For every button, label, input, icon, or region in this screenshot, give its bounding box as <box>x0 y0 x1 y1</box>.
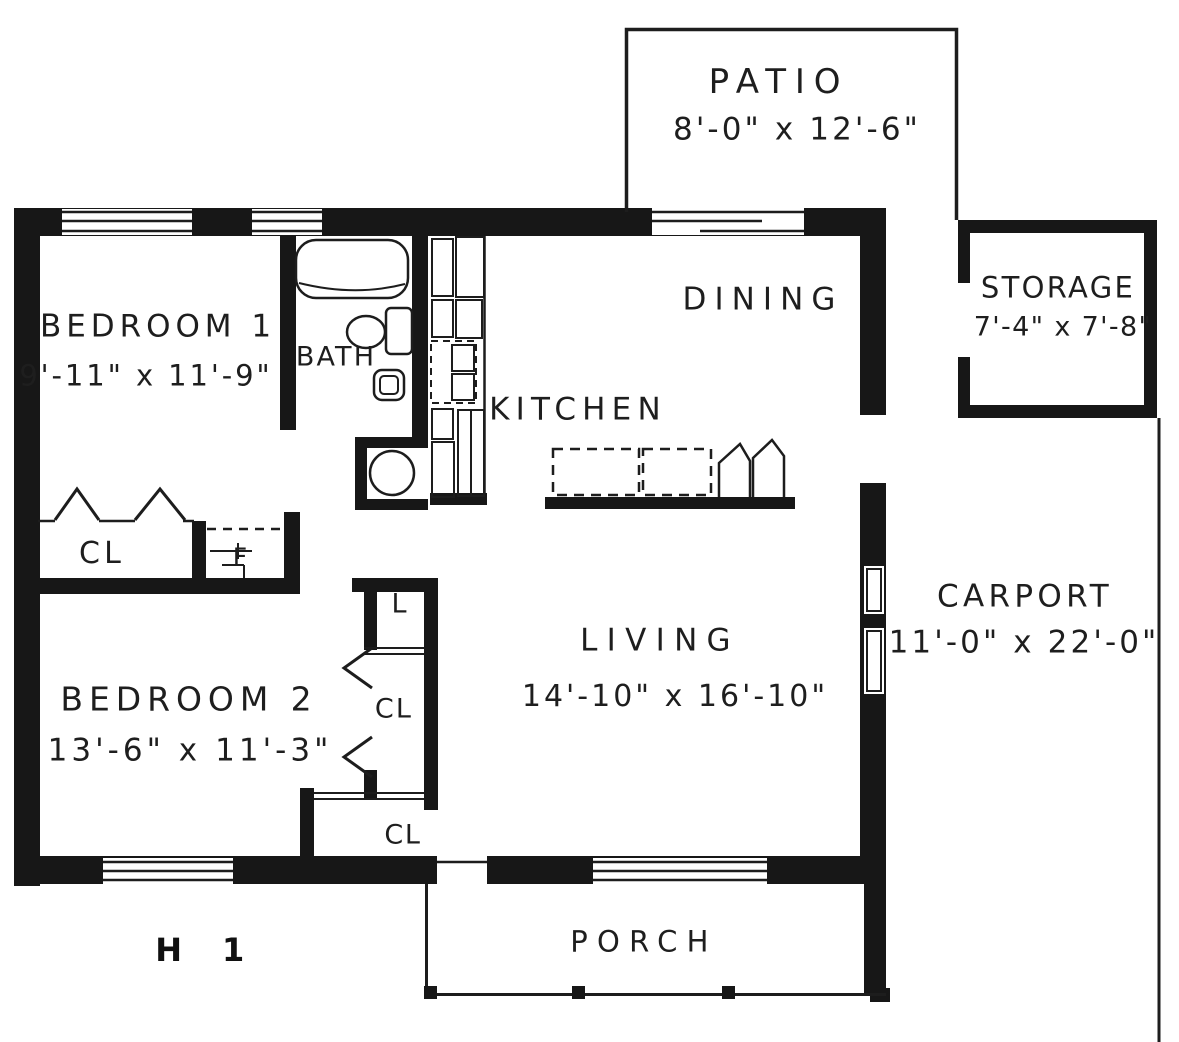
bedroom1-dimensions: 9'-11" x 11'-9" <box>19 362 272 391</box>
storage-label: STORAGE <box>981 274 1135 303</box>
patio-label: PATIO <box>709 65 850 99</box>
bedroom1-label: BEDROOM 1 <box>40 312 276 343</box>
linen-closet-label: L <box>391 591 406 618</box>
bedroom2-label: BEDROOM 2 <box>60 683 317 716</box>
closet-bedroom1-label: CL <box>79 539 125 569</box>
water-heater-icon <box>370 451 414 495</box>
carport-dimensions: 11'-0" x 22'-0" <box>889 628 1160 659</box>
dining-label: DINING <box>683 285 844 316</box>
porch-posts <box>424 986 735 999</box>
bedroom2-dimensions: 13'-6" x 11'-3" <box>48 736 333 767</box>
closet-entry-label: CL <box>384 822 421 849</box>
closet-bedroom2-label: CL <box>375 696 413 723</box>
floor-plan: PATIO 8'-0" x 12'-6" STORAGE 7'-4" x 7'-… <box>0 0 1179 1042</box>
living-dimensions: 14'-10" x 16'-10" <box>522 682 828 712</box>
storage-dimensions: 7'-4" x 7'-8" <box>974 314 1153 341</box>
kitchen-sink-icon <box>719 444 750 497</box>
figure-label: H 1 <box>155 934 258 966</box>
furnace-label: F <box>233 545 247 570</box>
bath-label: BATH <box>296 344 376 371</box>
counter-icon <box>643 449 711 495</box>
carport-label: CARPORT <box>937 582 1113 613</box>
counter-icon <box>553 449 639 495</box>
living-label: LIVING <box>580 626 740 657</box>
patio-dimensions: 8'-0" x 12'-6" <box>673 115 921 146</box>
toilet-tank-icon <box>386 308 412 354</box>
kitchen-sink-icon <box>753 440 784 497</box>
bath-sink-icon <box>374 370 404 400</box>
porch-label: PORCH <box>570 928 717 957</box>
floor-plan-drawing <box>0 0 1179 1042</box>
kitchen-label: KITCHEN <box>489 395 667 426</box>
